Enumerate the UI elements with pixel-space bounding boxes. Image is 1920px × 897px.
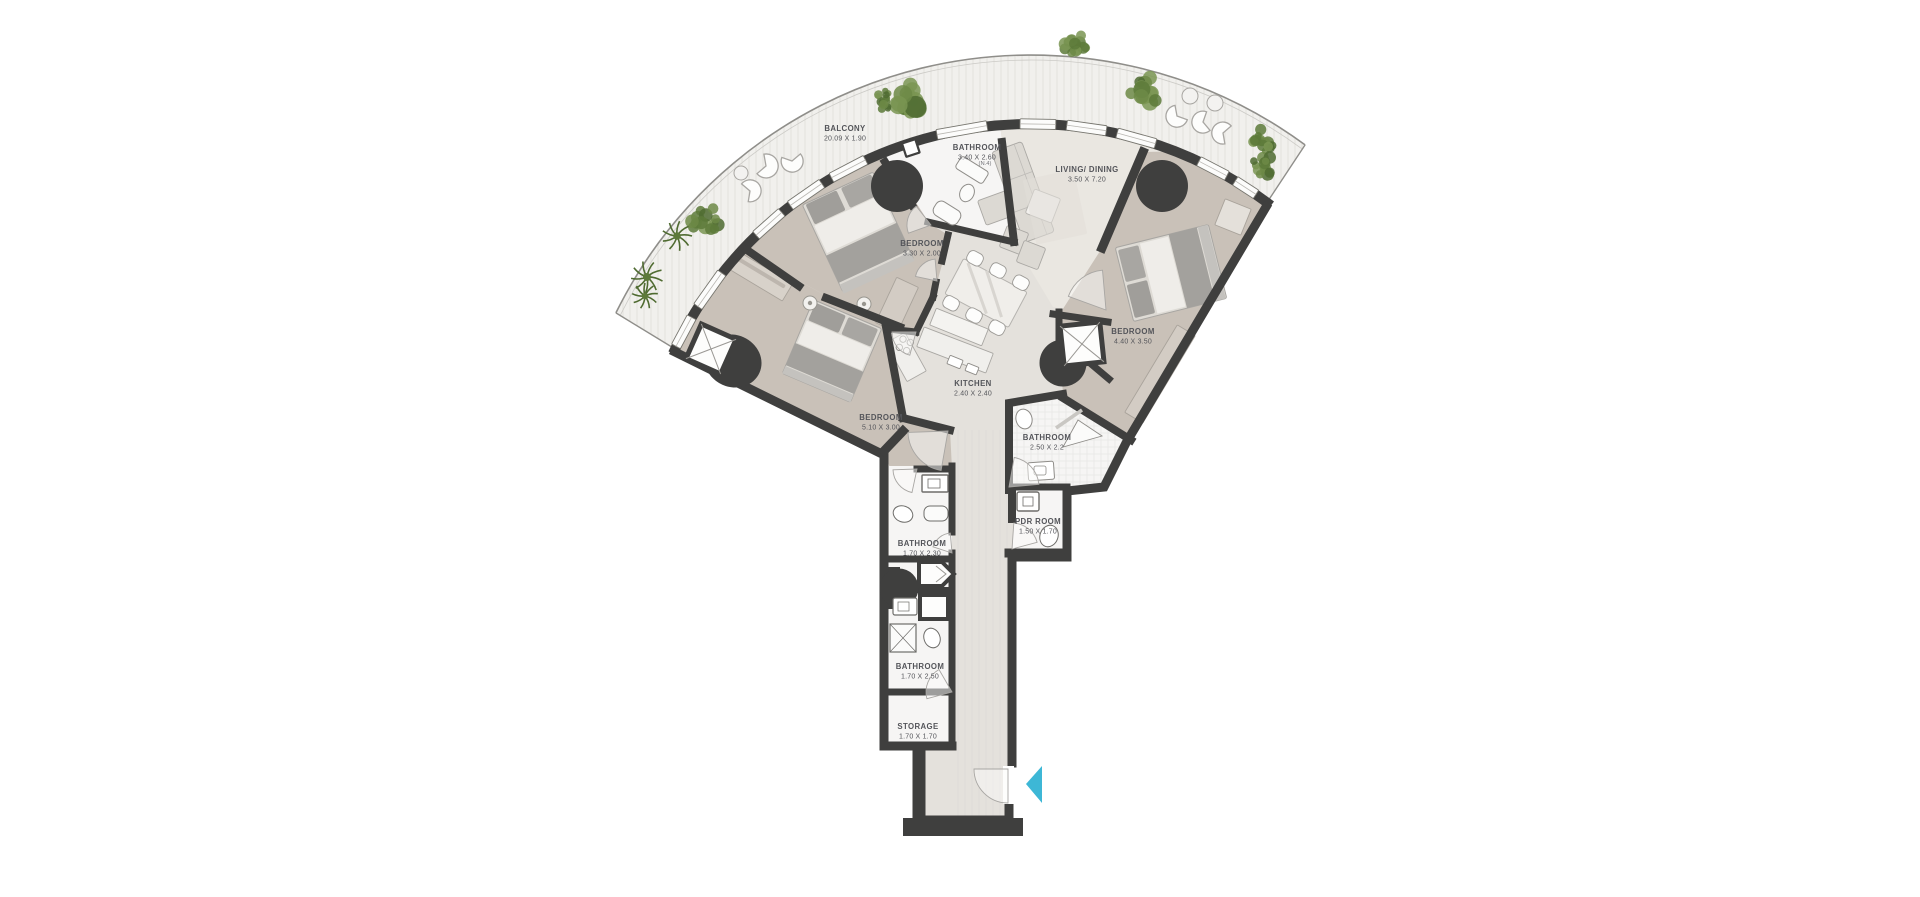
svg-text:BATHROOM: BATHROOM xyxy=(896,662,945,671)
svg-text:BATHROOM: BATHROOM xyxy=(953,143,1002,152)
svg-text:PDR ROOM: PDR ROOM xyxy=(1015,517,1061,526)
svg-text:2.50 X 2.2: 2.50 X 2.2 xyxy=(1030,445,1064,452)
svg-text:(N.4): (N.4) xyxy=(979,161,992,167)
svg-text:20.09 X 1.90: 20.09 X 1.90 xyxy=(824,136,866,143)
svg-text:BEDROOM: BEDROOM xyxy=(900,239,944,248)
svg-text:BATHROOM: BATHROOM xyxy=(1023,433,1072,442)
svg-text:BALCONY: BALCONY xyxy=(824,124,866,133)
svg-text:2.40 X 2.40: 2.40 X 2.40 xyxy=(954,391,992,398)
svg-text:KITCHEN: KITCHEN xyxy=(954,379,991,388)
svg-text:4.40 X 3.50: 4.40 X 3.50 xyxy=(1114,339,1152,346)
svg-text:BEDROOM: BEDROOM xyxy=(1111,327,1155,336)
svg-text:STORAGE: STORAGE xyxy=(897,722,938,731)
svg-text:1.70 X 2.30: 1.70 X 2.30 xyxy=(903,551,941,558)
svg-text:1.70 X 1.70: 1.70 X 1.70 xyxy=(899,734,937,741)
svg-text:LIVING/ DINING: LIVING/ DINING xyxy=(1055,165,1118,174)
svg-text:1.70 X 2.50: 1.70 X 2.50 xyxy=(901,674,939,681)
svg-text:BEDROOM: BEDROOM xyxy=(859,413,903,422)
svg-text:3.30 X 2.00: 3.30 X 2.00 xyxy=(903,251,941,258)
svg-text:5.10 X 3.00: 5.10 X 3.00 xyxy=(862,425,900,432)
svg-text:1.50 X 1.70: 1.50 X 1.70 xyxy=(1019,529,1057,536)
svg-text:3.50 X 7.20: 3.50 X 7.20 xyxy=(1068,177,1106,184)
svg-text:BATHROOM: BATHROOM xyxy=(898,539,947,548)
